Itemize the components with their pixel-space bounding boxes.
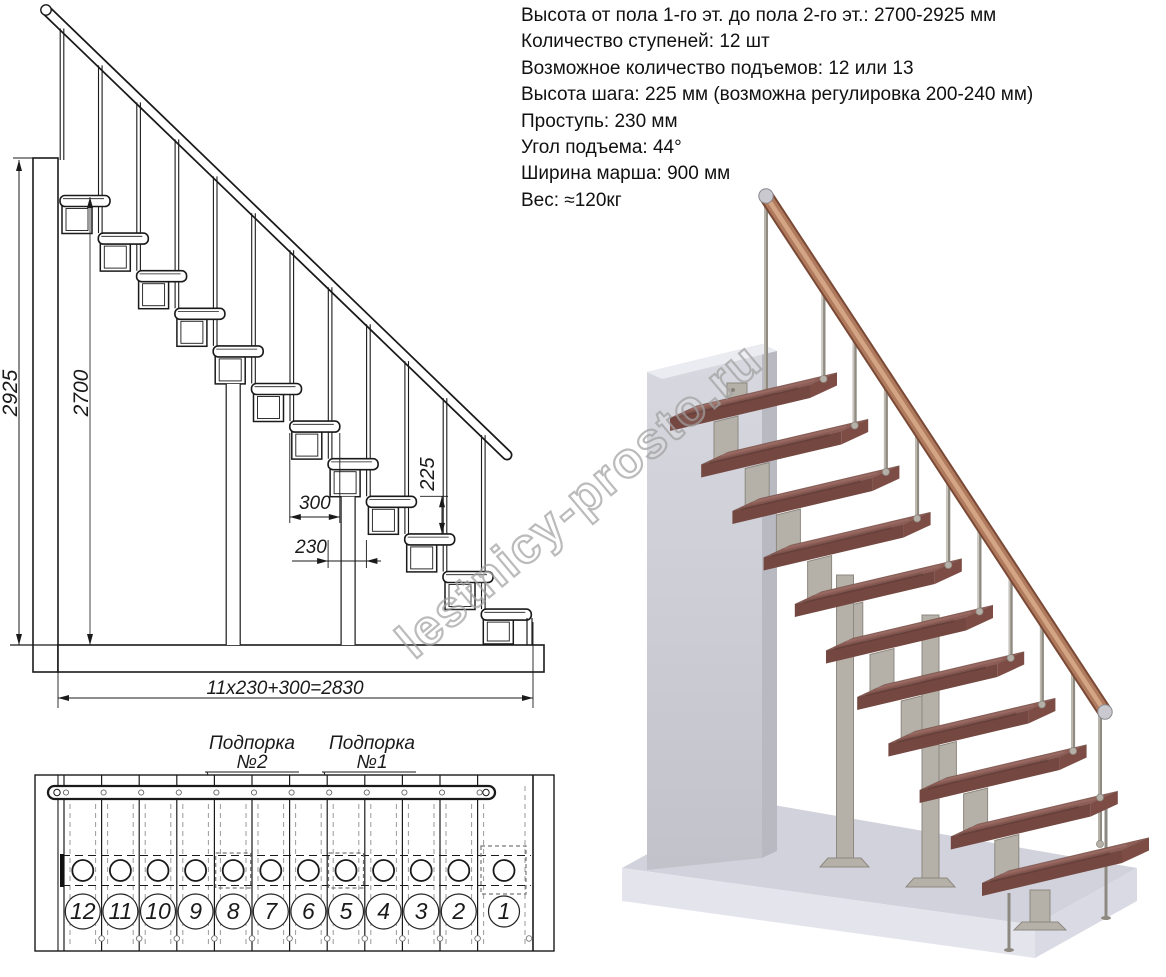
handrail-cap <box>1098 705 1112 719</box>
post-circle <box>411 860 432 881</box>
step-module-box <box>62 206 92 234</box>
tread <box>405 534 455 545</box>
post-circle <box>373 860 394 881</box>
spec-line: Возможное количество подъемов: 12 или 13 <box>521 56 1081 82</box>
baluster-ball-joint <box>882 469 889 476</box>
screw-icon <box>526 936 532 942</box>
baluster-fitting-icon <box>101 790 106 795</box>
column-flange <box>1014 922 1066 930</box>
tread <box>137 271 187 282</box>
dim-label-floor-height: 2700 <box>70 369 93 417</box>
baluster-fitting-icon <box>289 790 294 795</box>
wall-face <box>647 344 762 870</box>
rod-foot <box>1004 948 1014 952</box>
dimension-arrow <box>366 558 377 564</box>
screw-icon <box>362 936 368 942</box>
step-module-box <box>368 506 398 534</box>
support-2-label-line2: №2 <box>236 752 268 773</box>
tread <box>290 421 340 432</box>
dimension-arrow <box>317 558 328 564</box>
dim-label-depth: 300 <box>299 493 331 514</box>
base-plate <box>58 645 544 672</box>
post-circle <box>448 860 469 881</box>
post-circle <box>223 860 244 881</box>
step-number: 9 <box>189 898 202 924</box>
handrail-cap <box>41 5 51 15</box>
dim-label-rise: 225 <box>417 456 439 491</box>
dimension-arrow <box>329 514 340 520</box>
tread <box>481 609 531 620</box>
screw-icon <box>99 936 105 942</box>
baluster-fitting-icon <box>214 790 219 795</box>
baluster-ball-joint <box>1070 748 1077 755</box>
dimension-arrow <box>16 634 22 645</box>
baluster-ball-joint <box>1007 655 1014 662</box>
baluster-fitting-icon <box>63 790 68 795</box>
baluster-fitting-icon <box>439 790 444 795</box>
post-circle <box>298 860 319 881</box>
spec-line: Высота от пола 1-го эт. до пола 2-го эт.… <box>521 3 1081 29</box>
step-module-box <box>445 582 475 610</box>
screw-icon <box>136 936 142 942</box>
handrail-end-cap <box>483 789 489 795</box>
post-circle <box>260 860 281 881</box>
baluster-fitting-icon <box>251 790 256 795</box>
screw-icon <box>174 936 180 942</box>
screw-icon <box>249 936 255 942</box>
support-post-fill <box>341 497 355 645</box>
screw-icon <box>437 936 443 942</box>
post-circle <box>148 860 169 881</box>
dim-label-total-height: 2925 <box>0 369 22 417</box>
baluster-ball-joint <box>851 422 858 429</box>
support-1-label-line2: №1 <box>356 752 387 773</box>
rod-foot <box>1101 916 1111 920</box>
screw-icon <box>287 936 293 942</box>
stair-drawing-page: 2925270022530023011x230+300=2830 Высота … <box>0 0 1166 977</box>
spec-line: Проступь: 230 мм <box>521 109 1081 135</box>
plan-view-drawing: Подпорка№2Подпорка№1121110987654321 <box>0 715 600 977</box>
tread <box>366 496 416 507</box>
side-view-drawing: 2925270022530023011x230+300=2830 <box>0 0 600 715</box>
step-number: 6 <box>302 898 315 924</box>
wall-side <box>762 344 777 858</box>
post-circle <box>72 860 93 881</box>
step-module-box <box>215 356 245 384</box>
baluster-ball-joint <box>945 562 952 569</box>
column-flange <box>906 878 955 887</box>
screw-icon <box>212 936 218 942</box>
baluster-fitting-icon <box>327 790 332 795</box>
step-module-box <box>407 544 437 572</box>
bolt-icon <box>731 388 735 392</box>
tread <box>60 196 110 207</box>
tread <box>213 346 263 357</box>
support-2-label-line1: Подпорка <box>209 733 295 754</box>
step-module-box <box>330 469 360 497</box>
tread <box>252 384 302 395</box>
baluster-ball-joint <box>1038 701 1045 708</box>
step-number: 1 <box>498 898 511 924</box>
step-module-box <box>100 243 130 271</box>
tread <box>443 572 493 583</box>
dim-label-total-run: 11x230+300=2830 <box>206 678 364 699</box>
step-module-box <box>292 431 322 459</box>
step-module-box <box>139 281 169 309</box>
post-circle <box>494 860 515 881</box>
dimension-arrow <box>290 514 301 520</box>
tread <box>328 459 378 470</box>
tread <box>98 233 148 244</box>
step-number: 2 <box>451 898 465 924</box>
baluster-ball-joint <box>1097 794 1104 801</box>
dimension-arrow <box>439 496 445 507</box>
step-module-box <box>483 619 513 644</box>
step-number: 7 <box>264 898 278 924</box>
render-3d-view <box>600 180 1166 977</box>
handrail-cap <box>759 189 773 203</box>
step-number: 10 <box>145 898 171 924</box>
handrail-plan <box>48 786 495 799</box>
support-1-label-line1: Подпорка <box>329 733 415 754</box>
screw-icon <box>324 936 330 942</box>
stringer-end-cap <box>60 854 64 887</box>
baluster-ball-joint <box>914 515 921 522</box>
baluster-ball-joint <box>976 608 983 615</box>
post-circle <box>110 860 131 881</box>
baluster-fitting-icon <box>402 790 407 795</box>
baluster-fitting-icon <box>364 790 369 795</box>
spec-line: Угол подъема: 44° <box>521 135 1081 161</box>
step-number: 11 <box>108 898 132 924</box>
step-module-box <box>254 394 284 422</box>
spec-line: Высота шага: 225 мм (возможна регулировк… <box>521 82 1081 108</box>
post-circle <box>336 860 357 881</box>
screw-icon <box>400 936 406 942</box>
column-flange <box>820 858 869 867</box>
spec-line: Количество ступеней: 12 шт <box>521 29 1081 55</box>
baluster-ball-joint <box>820 376 827 383</box>
tread <box>175 308 225 319</box>
post-circle <box>185 860 206 881</box>
dimension-arrow <box>16 160 22 171</box>
dimension-arrow <box>439 523 445 534</box>
dimension-arrow <box>522 695 533 701</box>
step-number: 4 <box>377 898 390 924</box>
support-column <box>837 575 854 858</box>
baluster-fitting-icon <box>139 790 144 795</box>
upper-floor-edge <box>33 158 58 672</box>
step-number: 12 <box>70 898 96 924</box>
dim-label-run: 230 <box>294 537 327 558</box>
screw-icon <box>475 936 481 942</box>
support-column-short <box>1030 890 1050 922</box>
support-post-fill <box>226 384 240 645</box>
handrail-end-cap <box>54 789 60 795</box>
step-module-box <box>177 318 207 346</box>
dimension-arrow <box>87 634 93 645</box>
step-number: 5 <box>340 898 353 924</box>
step-number: 8 <box>227 898 240 924</box>
dimension-arrow <box>58 695 69 701</box>
step-number: 3 <box>415 898 428 924</box>
baluster-ball-joint <box>1097 841 1104 848</box>
baluster-fitting-icon <box>176 790 181 795</box>
baluster-fitting-icon <box>477 790 482 795</box>
